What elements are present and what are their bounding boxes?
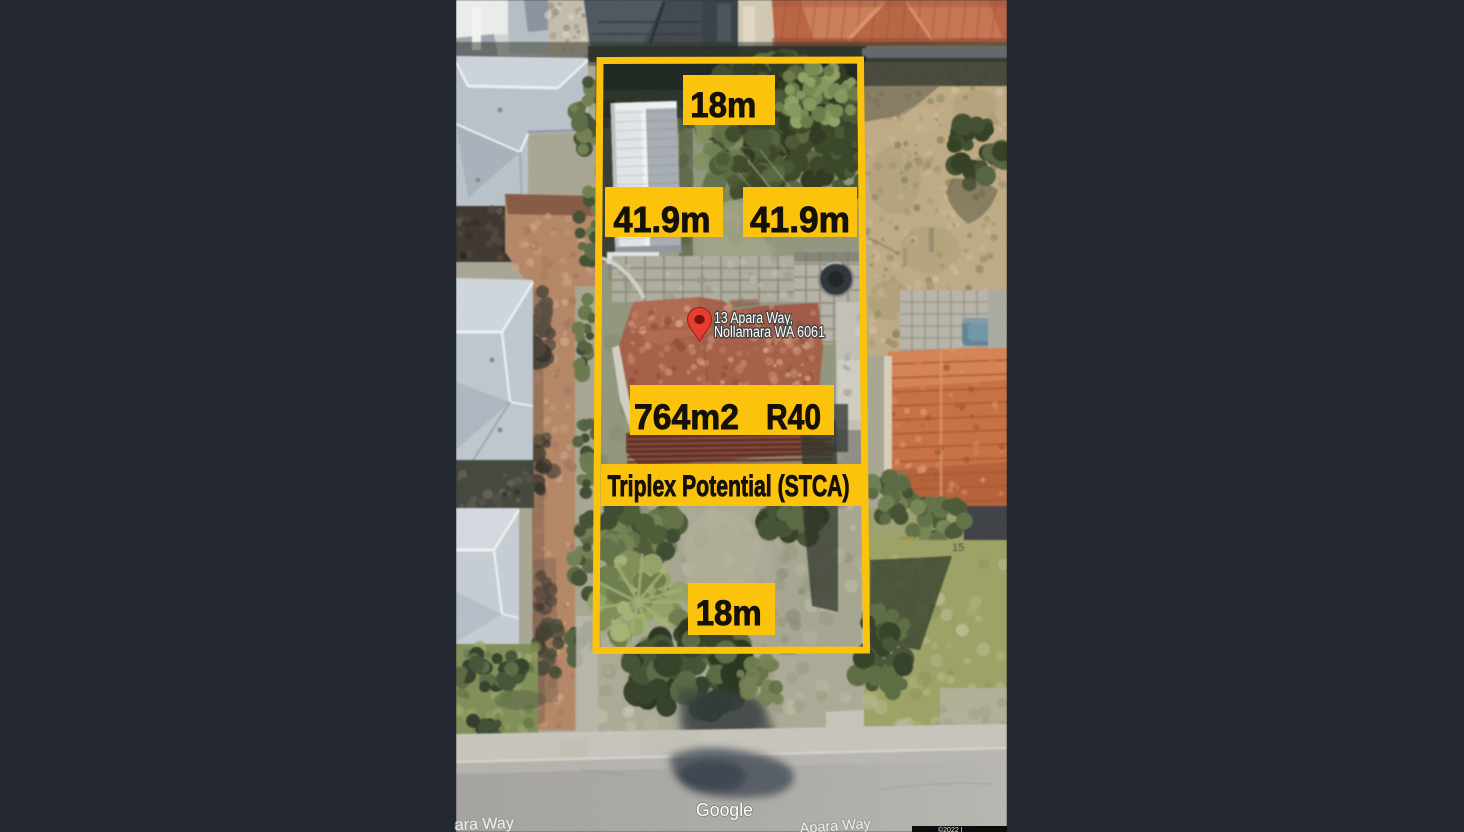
svg-text:18m: 18m [690, 85, 756, 125]
svg-text:41.9m: 41.9m [614, 199, 711, 240]
svg-text:Google: Google [696, 800, 753, 820]
svg-text:764m2: 764m2 [634, 397, 739, 437]
svg-text:Apara Way: Apara Way [799, 816, 872, 832]
svg-text:41.9m: 41.9m [750, 199, 850, 240]
svg-text:18m: 18m [696, 594, 762, 633]
svg-text:R40: R40 [766, 397, 821, 437]
svg-text:ara Way: ara Way [455, 815, 515, 832]
svg-text:Triplex Potential (STCA): Triplex Potential (STCA) [608, 470, 850, 503]
svg-text:Nollamara WA 6061: Nollamara WA 6061 [714, 324, 825, 341]
svg-text:©2022 I: ©2022 I [938, 826, 963, 832]
